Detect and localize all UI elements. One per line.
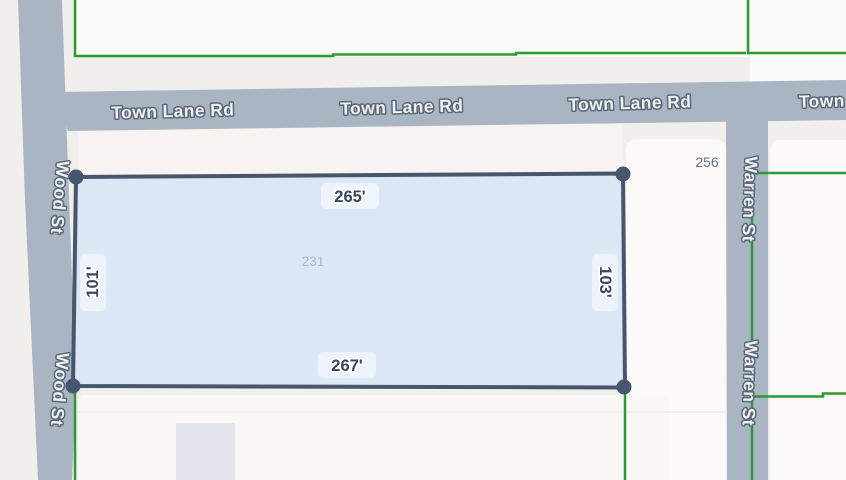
dimension-label-bottom: 267' xyxy=(331,357,363,375)
map-canvas: Town Lane Rd Town Lane Rd Town Lane Rd T… xyxy=(0,0,846,480)
parcel-vertex-se[interactable] xyxy=(617,380,632,395)
road-label-town-lane-rd-partial: Town xyxy=(799,90,845,111)
parcel-block-right-of-warren xyxy=(770,140,846,480)
road-label-warren-st-2: Warren St xyxy=(739,340,762,426)
road-label-warren-st-1: Warren St xyxy=(739,156,762,242)
parcel-vertex-ne[interactable] xyxy=(616,167,631,182)
building-footprint xyxy=(176,423,235,480)
parcel-block-above-town-lane xyxy=(77,0,747,57)
parcel-number-231: 231 xyxy=(302,254,325,269)
dimension-label-right: 103' xyxy=(596,266,614,298)
dimension-label-top: 265' xyxy=(334,188,366,206)
parcel-block-below-parcel xyxy=(78,395,670,480)
dimension-label-left: 101' xyxy=(84,266,102,298)
parcel-map-viewport[interactable]: Town Lane Rd Town Lane Rd Town Lane Rd T… xyxy=(0,0,846,480)
road-label-town-lane-rd-3: Town Lane Rd xyxy=(568,91,692,114)
parcel-block-top-right xyxy=(750,0,846,82)
strip-between-road-and-parcel xyxy=(78,124,623,177)
parcel-number-256: 256 xyxy=(695,154,719,170)
road-label-town-lane-rd-2: Town Lane Rd xyxy=(340,95,464,118)
road-label-town-lane-rd-1: Town Lane Rd xyxy=(111,99,235,122)
